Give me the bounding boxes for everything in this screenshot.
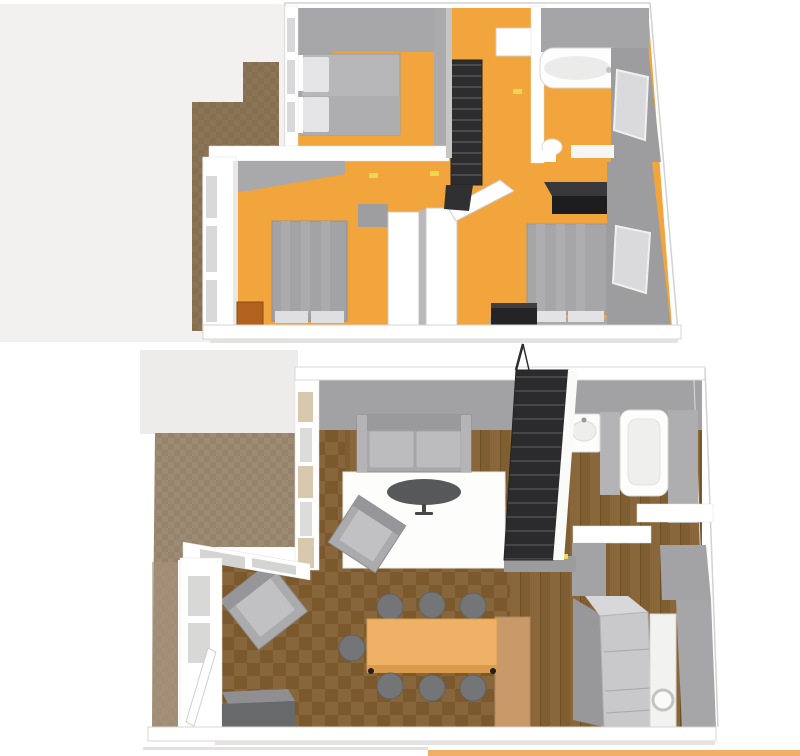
page-edge-line (428, 750, 800, 756)
background-shade (140, 350, 298, 434)
ground-shadow (215, 741, 715, 745)
window-pane (287, 18, 295, 52)
wall (637, 504, 713, 522)
coffee-table-stem (422, 504, 426, 513)
sofa-cushion (416, 431, 461, 468)
dining-chair (460, 593, 486, 619)
south-wall (203, 325, 681, 339)
pillow (303, 97, 329, 132)
wall-face (434, 8, 447, 154)
window-pane (287, 60, 295, 94)
nightstand (491, 305, 537, 326)
floor-plan-page (0, 0, 800, 756)
table-foot (490, 668, 496, 674)
bed-fold (536, 224, 545, 312)
stair-railing (516, 344, 523, 370)
wall-face (660, 545, 711, 600)
sink-faucet (582, 418, 587, 423)
sofa-back (357, 415, 471, 431)
bed-fold (576, 224, 585, 312)
dining-table (367, 619, 497, 670)
sofa-cushion (369, 431, 414, 468)
nightstand (237, 302, 263, 327)
table-foot (368, 668, 374, 674)
lower-floor-plan (140, 344, 800, 756)
door-swing (541, 148, 556, 162)
window-pane (300, 428, 312, 462)
wall (600, 412, 620, 495)
page-edge-line (143, 747, 428, 750)
sink-bowl (572, 421, 596, 441)
door-marker (369, 173, 378, 178)
appliance-column (650, 614, 676, 730)
window-pane (613, 226, 650, 293)
wall-face (676, 600, 716, 728)
window-pane (287, 102, 295, 132)
bathtub-basin (544, 56, 610, 80)
south-wall (148, 727, 716, 741)
stair-railing (523, 344, 529, 370)
dining-chair (377, 594, 403, 620)
pillow (568, 311, 604, 322)
wall-face (572, 543, 606, 596)
wall (573, 526, 651, 543)
wall-face (541, 8, 649, 52)
wall (209, 146, 449, 161)
door-gap (419, 210, 426, 331)
bed-fold (281, 221, 290, 313)
coffee-table-base (415, 512, 433, 515)
pillow (311, 311, 344, 323)
north-wall (295, 367, 705, 380)
nightstand-top (491, 303, 537, 308)
bed-fold (301, 221, 310, 313)
curtain (298, 392, 313, 422)
pillow (303, 57, 329, 92)
kitchen-island (495, 617, 530, 727)
kitchen-unit-front (600, 612, 652, 727)
coffee-table (387, 479, 461, 505)
ground-shadow (210, 339, 678, 343)
sofa-armrest (357, 415, 367, 472)
curtain (298, 466, 313, 498)
window-pane (206, 280, 217, 322)
door-marker (430, 171, 439, 176)
dining-chair (377, 673, 403, 699)
kitchen-unit-side (573, 598, 604, 727)
dining-chair (460, 675, 486, 701)
closet-door (388, 212, 419, 331)
bed-fold (321, 221, 330, 313)
bed-fold (556, 224, 565, 312)
washer-door (653, 690, 673, 710)
window-pane (188, 576, 210, 616)
floor-plan-canvas (0, 0, 800, 756)
dining-table-edge (367, 665, 497, 673)
window-pane (206, 176, 217, 218)
pillow (275, 311, 308, 323)
sofa-armrest (461, 415, 471, 472)
vanity (571, 145, 614, 158)
bathtub-basin (628, 419, 660, 485)
door-marker (513, 89, 522, 94)
closet-door (426, 208, 457, 331)
stair-landing (444, 185, 473, 211)
window-pane (300, 502, 312, 536)
wall (446, 8, 452, 158)
staircase (451, 60, 482, 185)
terrace-strip (152, 562, 178, 728)
window-pane (614, 70, 648, 140)
window-pane (206, 226, 217, 272)
dining-chair (419, 675, 445, 701)
dining-chair (419, 592, 445, 618)
wall-stub (358, 204, 388, 227)
upper-floor-plan (0, 3, 681, 343)
dining-chair (339, 635, 365, 661)
